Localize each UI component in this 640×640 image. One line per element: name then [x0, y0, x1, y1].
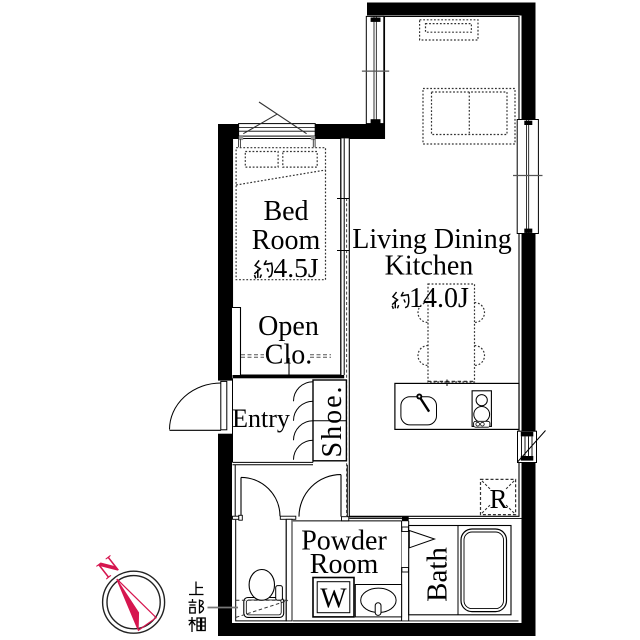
svg-text:W: W: [320, 584, 347, 615]
svg-text:4.5J: 4.5J: [274, 252, 319, 283]
svg-text:Bath: Bath: [422, 547, 454, 602]
svg-text:14.0J: 14.0J: [409, 283, 469, 314]
svg-text:Open: Open: [258, 311, 319, 342]
svg-text:Bed: Bed: [263, 196, 308, 227]
svg-text:Room: Room: [310, 549, 379, 580]
svg-text:Entry: Entry: [232, 404, 290, 433]
svg-text:Kitchen: Kitchen: [385, 251, 474, 282]
svg-text:R: R: [489, 484, 507, 514]
svg-text:Shoe.: Shoe.: [317, 385, 348, 458]
